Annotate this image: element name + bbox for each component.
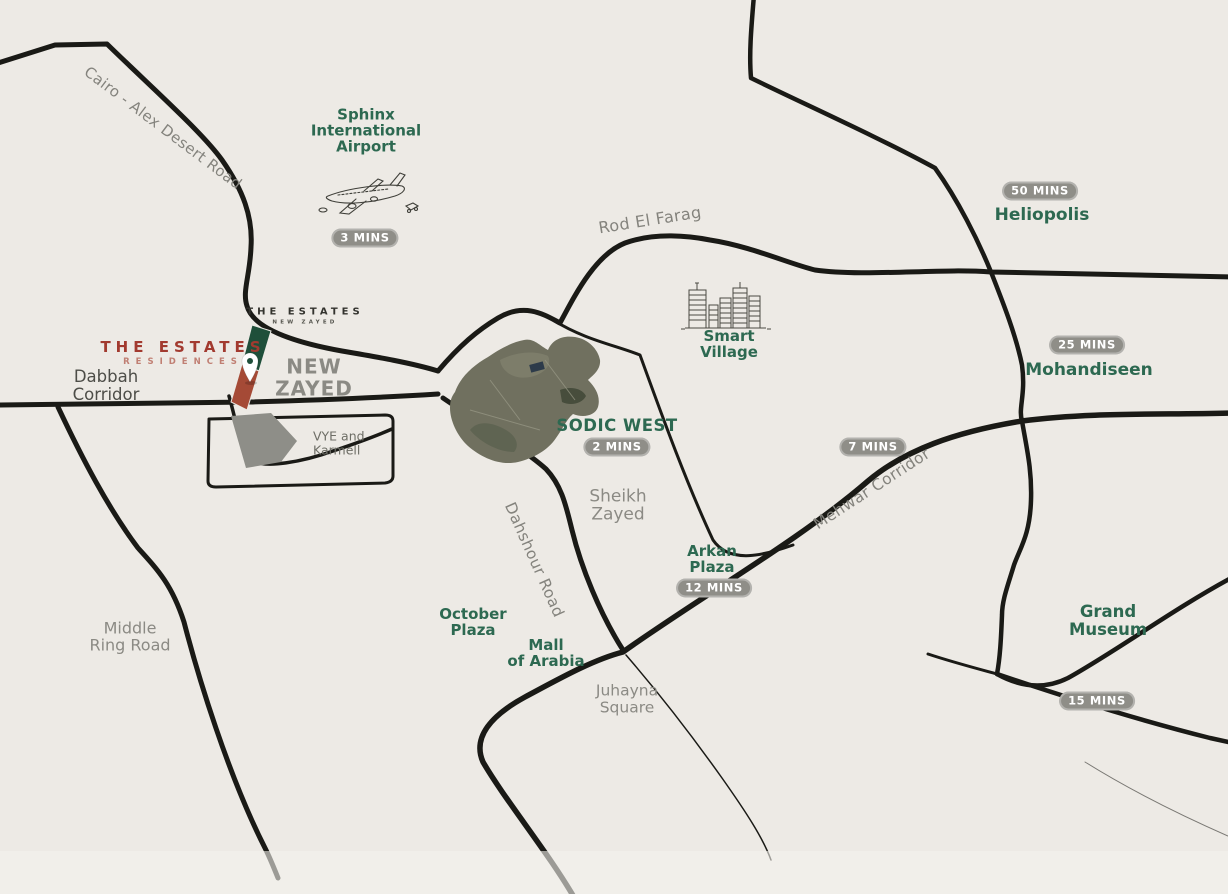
grand-museum-line1: Grand [1069,603,1147,621]
residences-logo: THE ESTATES RESIDENCES [100,339,265,367]
time-badge-arkan: 12 MINS [676,579,752,598]
residences-logo-subtitle: RESIDENCES [100,358,265,367]
sodic-west-satellite-area [450,337,600,463]
residences-logo-title: THE ESTATES [100,339,265,355]
time-badge-mehwar: 7 MINS [839,438,906,457]
place-arkan-plaza: Arkan Plaza [687,543,737,575]
place-heliopolis: Heliopolis [995,206,1090,224]
site-logo-subtitle: NEW ZAYED [246,320,363,326]
sphinx-line2: International [311,123,421,139]
smart-village-line1: Smart [700,328,758,344]
mall-line1: Mall [507,637,584,653]
time-badge-grand-museum: 15 MINS [1059,692,1135,711]
sheikh-zayed-line2: Zayed [589,506,646,524]
dabbah-line1: Dabbah [73,368,140,386]
arkan-line2: Plaza [687,559,737,575]
sphinx-line1: Sphinx [311,107,421,123]
place-mohandiseen: Mohandiseen [1025,361,1153,379]
site-logo-title: THE ESTATES [246,308,363,319]
location-map: Cairo - Alex Desert Road Rod El Farag Me… [0,0,1228,894]
road-museum-west-stub [928,654,997,674]
place-sheikh-zayed: Sheikh Zayed [589,488,646,525]
mall-line2: of Arabia [507,653,584,669]
vye-line2: Karmell [313,443,365,457]
place-new-zayed: NEW ZAYED [275,356,353,399]
airplane-icon [319,173,418,214]
grand-museum-line2: Museum [1069,621,1147,639]
place-sphinx-airport: Sphinx International Airport [311,107,421,156]
sphinx-line3: Airport [311,139,421,155]
place-sodic-west: SODIC WEST [556,417,677,435]
road-faint-bottom-right [1085,762,1228,836]
time-badge-sodic-west: 2 MINS [583,438,650,457]
road-label-middle-ring: Middle Ring Road [89,620,170,655]
place-smart-village: Smart Village [700,328,758,360]
time-badge-mohandiseen: 25 MINS [1049,336,1125,355]
road-dabbah-corridor [0,394,438,405]
arkan-line1: Arkan [687,543,737,559]
vye-line1: VYE and [313,430,365,444]
october-line2: Plaza [439,622,506,638]
place-october-plaza: October Plaza [439,606,506,638]
middle-ring-line2: Ring Road [89,637,170,654]
juhayna-line1: Juhayna [596,682,658,699]
place-vye-karmell: VYE and Karmell [313,430,365,457]
place-grand-museum: Grand Museum [1069,603,1147,639]
place-mall-of-arabia: Mall of Arabia [507,637,584,669]
october-line1: October [439,606,506,622]
road-mehwar-corridor [480,413,1228,894]
middle-ring-line1: Middle [89,620,170,637]
road-label-dabbah-corridor: Dabbah Corridor [73,368,140,404]
sheikh-zayed-line1: Sheikh [589,488,646,506]
new-zayed-line1: NEW [275,356,353,378]
juhayna-line2: Square [596,699,658,716]
place-juhayna-square: Juhayna Square [596,682,658,715]
road-top-right [750,0,1031,674]
smart-village-line2: Village [700,344,758,360]
new-zayed-line2: ZAYED [275,378,353,400]
vye-karmell-area [231,413,297,468]
site-logo: THE ESTATES NEW ZAYED [246,308,363,327]
time-badge-heliopolis: 50 MINS [1002,182,1078,201]
bottom-fade-band [0,851,1228,894]
time-badge-sphinx: 3 MINS [331,229,398,248]
road-cairo-alex [0,44,438,371]
buildings-icon [681,282,771,329]
dabbah-line2: Corridor [73,386,140,404]
